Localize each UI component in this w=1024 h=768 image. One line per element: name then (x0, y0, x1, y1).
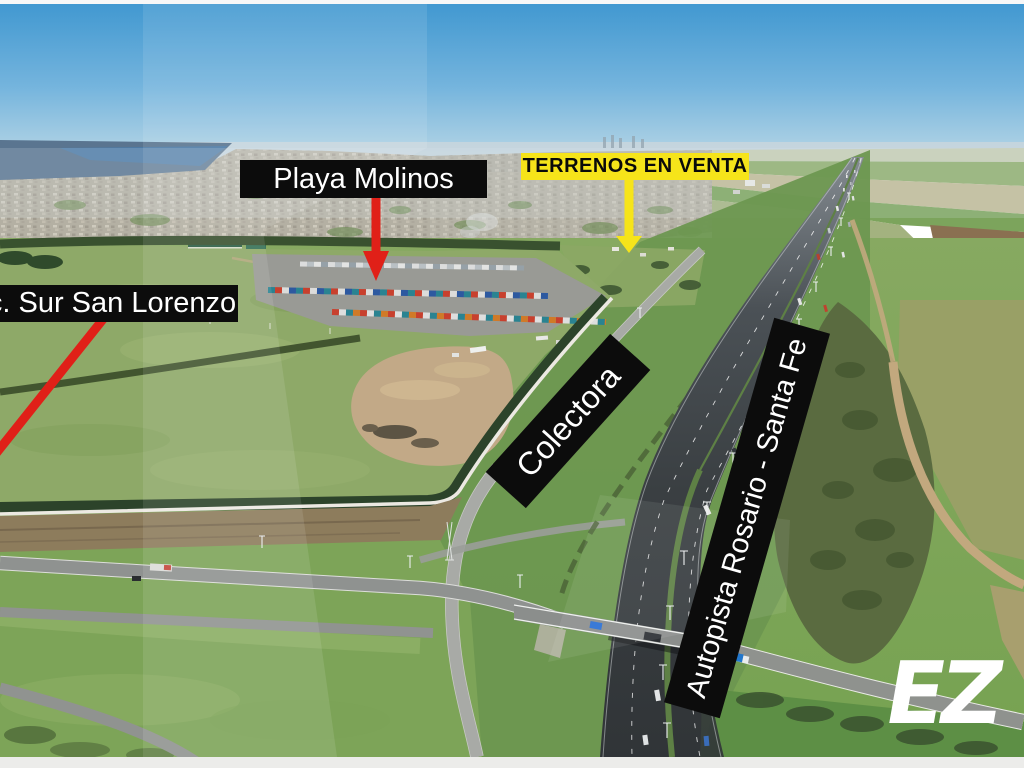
aerial-photo-scene (0, 0, 1024, 768)
ez-logo-watermark: EZ (873, 644, 1011, 744)
bottom-frame-strip (0, 757, 1024, 768)
aerial-photo: Playa Molinos TERRENOS EN VENTA c. Sur S… (0, 0, 1024, 768)
label-playa-molinos: Playa Molinos (240, 160, 487, 198)
label-terrenos-en-venta: TERRENOS EN VENTA (521, 153, 749, 180)
car-on-access-road (132, 576, 141, 581)
label-acceso-sur-san-lorenzo: c. Sur San Lorenzo (0, 285, 238, 322)
top-frame-strip (0, 0, 1024, 4)
